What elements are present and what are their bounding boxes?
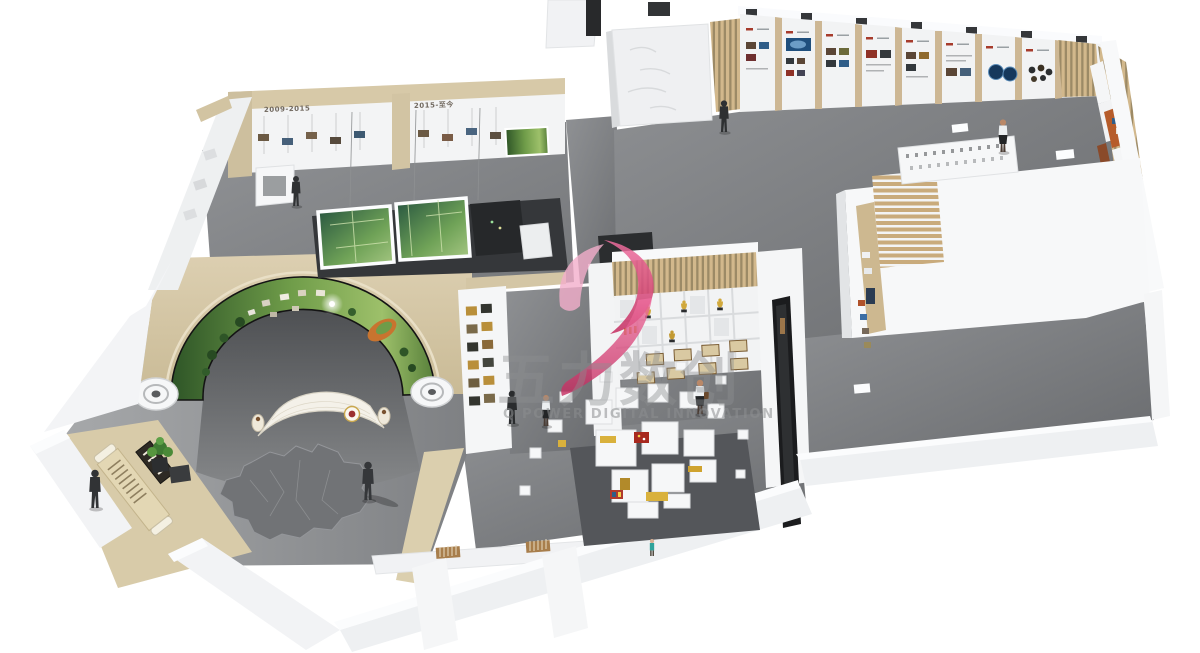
scroll-roller-right xyxy=(411,377,453,407)
render-canvas: 2009-2015 2015-至今 xyxy=(0,0,1200,653)
exhibition-panel-wall xyxy=(738,6,1102,112)
ceiling-opening xyxy=(586,0,601,36)
watermark-cn-text: 五力数创 xyxy=(497,346,741,414)
entry-zone xyxy=(546,0,750,128)
pergola-slats xyxy=(872,170,944,268)
wall-pillar xyxy=(412,558,458,650)
sand-table-model-2 xyxy=(396,198,470,260)
lectern-podium xyxy=(520,223,552,259)
timeline-era-right-label: 2015-至今 xyxy=(414,100,454,110)
watermark-en-text: Q POWER DIGITAL INNOVATION xyxy=(503,407,775,422)
display-pedestal xyxy=(169,465,191,484)
floor-card xyxy=(1056,149,1075,160)
display-stand xyxy=(854,383,871,393)
relief-sketch-wall xyxy=(612,24,712,126)
green-display-screen xyxy=(505,127,548,156)
small-wall-screen xyxy=(866,288,875,304)
ceiling-opening xyxy=(648,2,670,16)
timeline-era-left-label: 2009-2015 xyxy=(264,104,311,114)
wood-strip-detail xyxy=(780,318,785,334)
floor-card xyxy=(952,123,969,133)
art-cube xyxy=(634,432,649,443)
control-console xyxy=(470,200,526,256)
exhibition-hall-3d-render: 2009-2015 2015-至今 xyxy=(0,0,1200,653)
